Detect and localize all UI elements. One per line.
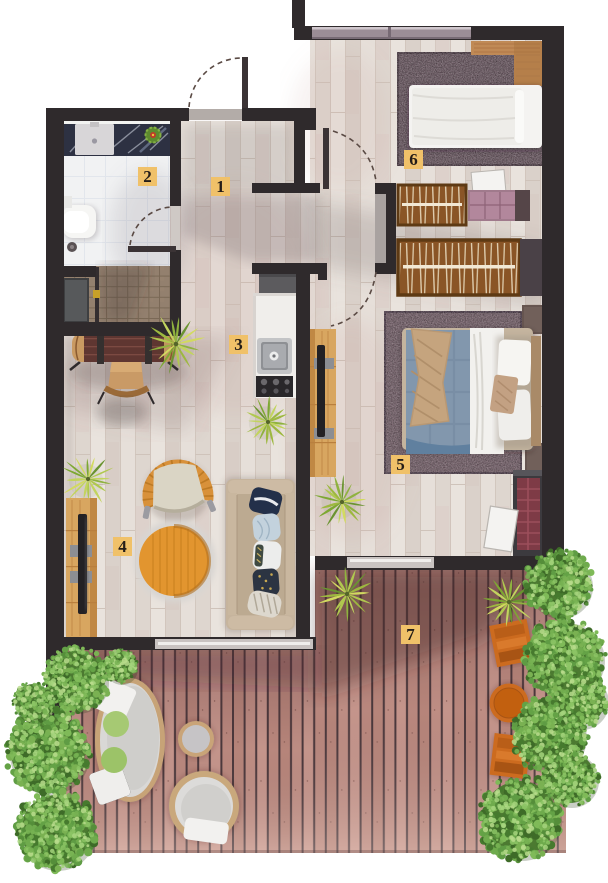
svg-text:4: 4: [118, 537, 127, 556]
svg-text:1: 1: [216, 177, 225, 196]
svg-text:3: 3: [234, 335, 243, 354]
svg-text:2: 2: [143, 167, 152, 186]
svg-text:6: 6: [409, 150, 418, 169]
svg-text:7: 7: [406, 625, 415, 644]
svg-text:5: 5: [396, 455, 405, 474]
